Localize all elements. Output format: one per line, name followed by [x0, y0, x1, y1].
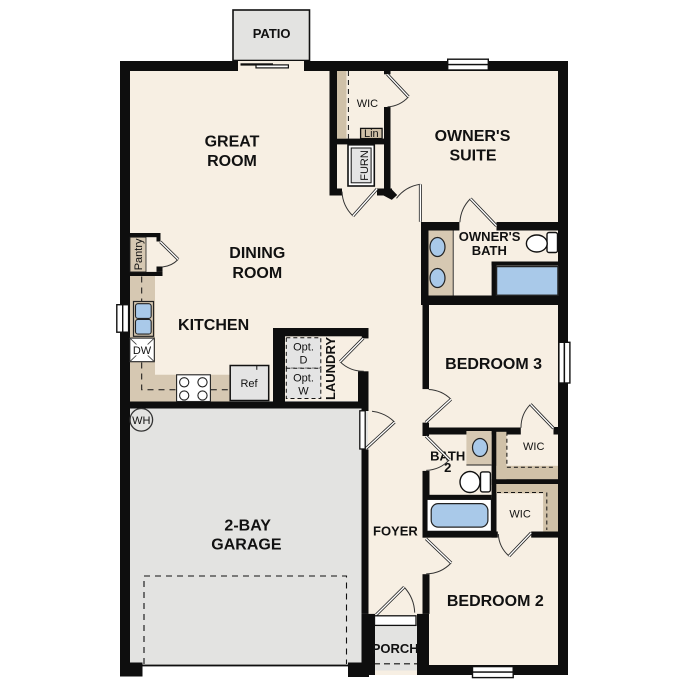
svg-text:D: D: [300, 355, 308, 367]
svg-text:PATIO: PATIO: [253, 26, 291, 41]
svg-text:KITCHEN: KITCHEN: [178, 317, 249, 334]
svg-text:OWNER'S: OWNER'S: [435, 128, 511, 145]
svg-text:WH: WH: [132, 415, 150, 427]
svg-text:PORCH: PORCH: [372, 641, 419, 656]
svg-text:WIC: WIC: [523, 441, 544, 453]
svg-text:FOYER: FOYER: [373, 524, 418, 539]
svg-text:DW: DW: [133, 345, 152, 357]
svg-text:OWNER'S: OWNER'S: [459, 229, 521, 244]
svg-text:W: W: [298, 386, 309, 398]
svg-text:BATH: BATH: [472, 243, 507, 258]
svg-text:WIC: WIC: [357, 98, 378, 110]
svg-text:DINING: DINING: [229, 245, 285, 262]
svg-text:ROOM: ROOM: [207, 153, 257, 170]
svg-text:2-BAY: 2-BAY: [224, 517, 271, 534]
svg-text:SUITE: SUITE: [449, 148, 496, 165]
svg-text:2: 2: [444, 460, 451, 475]
svg-text:Lin: Lin: [364, 128, 379, 140]
svg-text:BEDROOM 3: BEDROOM 3: [445, 356, 542, 373]
svg-text:GREAT: GREAT: [205, 134, 260, 151]
svg-text:Opt.: Opt.: [293, 373, 314, 385]
svg-text:WIC: WIC: [509, 508, 530, 520]
svg-text:BEDROOM 2: BEDROOM 2: [447, 593, 544, 610]
svg-text:Pantry: Pantry: [133, 238, 145, 270]
svg-text:LAUNDRY: LAUNDRY: [323, 337, 338, 400]
svg-text:Ref: Ref: [240, 378, 258, 390]
svg-text:ROOM: ROOM: [232, 265, 282, 282]
svg-text:Opt.: Opt.: [293, 342, 314, 354]
svg-text:FURN: FURN: [359, 150, 371, 181]
svg-text:GARAGE: GARAGE: [211, 536, 282, 553]
